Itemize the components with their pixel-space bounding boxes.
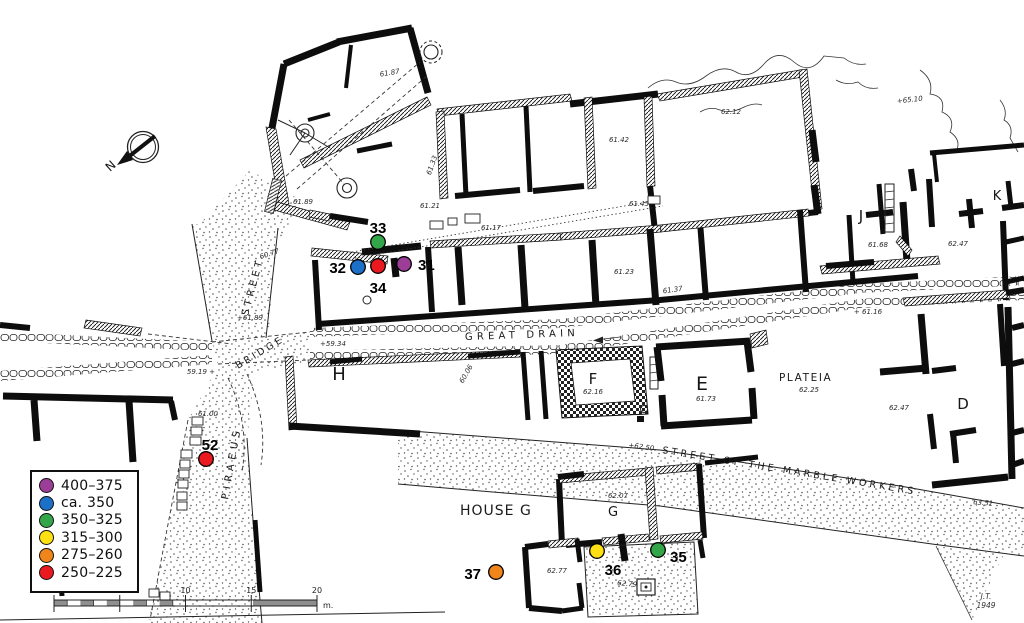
find-spot-label-31: 31 bbox=[418, 257, 435, 274]
building-letter-f: F bbox=[589, 370, 598, 388]
legend-item: 400–375 bbox=[39, 477, 137, 494]
signature-year: 1949 bbox=[976, 601, 995, 610]
elevation-label: 61.73 bbox=[696, 395, 716, 403]
elevation-label: +59.34 bbox=[320, 340, 346, 348]
well-feature bbox=[424, 45, 438, 59]
elevation-label: 61.37 bbox=[662, 285, 683, 296]
building-letter-d: D bbox=[957, 395, 969, 413]
find-spot-label-52: 52 bbox=[202, 437, 219, 454]
compass-needle bbox=[127, 136, 155, 158]
legend-label: 315–300 bbox=[61, 530, 123, 546]
scale-tick-label: 20 bbox=[312, 586, 322, 595]
building-letter-k: K bbox=[993, 189, 1002, 204]
legend-swatch bbox=[39, 565, 54, 580]
legend-item: 275–260 bbox=[39, 547, 137, 564]
elevation-label: 62.77 bbox=[547, 567, 568, 575]
elevation-label: 62.47 bbox=[948, 240, 969, 248]
find-spot-34 bbox=[371, 259, 386, 274]
building-letter-j: J bbox=[858, 207, 863, 225]
elevation-label: 61.33 bbox=[425, 155, 439, 177]
find-spot-label-33: 33 bbox=[370, 220, 387, 237]
legend-label: ca. 350 bbox=[61, 495, 114, 511]
building-letter-h: H bbox=[332, 364, 346, 385]
compass-n-label: N bbox=[103, 158, 119, 174]
find-spot-35 bbox=[651, 543, 666, 558]
legend-swatch bbox=[39, 478, 54, 493]
find-spot-37 bbox=[489, 565, 504, 580]
find-spot-32 bbox=[351, 260, 366, 275]
compass-rose: N bbox=[103, 132, 159, 175]
elevation-label: 61.21 bbox=[420, 202, 440, 210]
legend-item: 250–225 bbox=[39, 564, 137, 581]
scale-unit-label: m. bbox=[323, 601, 333, 610]
building-letter-e: E bbox=[696, 373, 708, 395]
legend-label: 250–225 bbox=[61, 565, 123, 581]
signature-initials: J.T. bbox=[979, 592, 992, 601]
legend-swatch bbox=[39, 496, 54, 511]
house-g-label: HOUSE G bbox=[460, 503, 532, 519]
legend-item: 350–325 bbox=[39, 512, 137, 529]
legend-swatch bbox=[39, 548, 54, 563]
elevation-label: 61.87 bbox=[379, 67, 401, 78]
find-spot-label-37: 37 bbox=[464, 566, 481, 583]
elevation-label: 61.68 bbox=[868, 241, 889, 249]
elevation-label: 61.42 bbox=[609, 136, 630, 144]
find-spot-label-35: 35 bbox=[670, 549, 687, 566]
legend-item: 315–300 bbox=[39, 529, 137, 546]
find-spot-label-36: 36 bbox=[605, 562, 622, 579]
elevation-label: 61.45 bbox=[629, 200, 650, 208]
elevation-label: 61.17 bbox=[481, 224, 502, 232]
legend-swatch bbox=[39, 513, 54, 528]
elevation-label: + 61.16 bbox=[854, 308, 883, 316]
find-spot-label-34: 34 bbox=[370, 280, 387, 297]
building-j-k bbox=[820, 145, 1024, 300]
legend-label: 275–260 bbox=[61, 547, 123, 563]
elevation-label: 62.25 bbox=[799, 386, 820, 394]
legend-item: ca. 350 bbox=[39, 494, 137, 511]
elevation-label: 59.19 + bbox=[187, 368, 215, 376]
elevation-label: +65.10 bbox=[896, 95, 923, 106]
elevation-label: 61.00 bbox=[198, 410, 219, 418]
scale-tick-label: 15 bbox=[246, 586, 256, 595]
legend-label: 350–325 bbox=[61, 512, 123, 528]
elevation-label: 61.23 bbox=[614, 268, 634, 276]
elevation-label: +61.89 bbox=[237, 314, 263, 322]
building-letter-g: G bbox=[608, 505, 618, 520]
elevation-label: 62.16 bbox=[583, 388, 604, 396]
great-drain bbox=[0, 276, 1024, 381]
elevation-label: 62.07 bbox=[608, 492, 629, 500]
scale-tick-label: 10 bbox=[180, 586, 190, 595]
terrain-contours bbox=[648, 55, 1018, 152]
elevation-label: 61.89 bbox=[293, 198, 314, 206]
plan-canvas: GREAT DRAIN STREET OF THE MARBLE WORKERS… bbox=[0, 0, 1024, 623]
elevation-label: 60.06 bbox=[458, 363, 475, 385]
legend-swatch bbox=[39, 530, 54, 545]
find-spot-label-32: 32 bbox=[329, 260, 346, 277]
plateia-label: PLATEIA bbox=[779, 372, 832, 384]
site-plan-map: GREAT DRAIN STREET OF THE MARBLE WORKERS… bbox=[0, 0, 1024, 623]
building-d bbox=[880, 290, 1024, 485]
legend-label: 400–375 bbox=[61, 478, 123, 494]
find-spot-31 bbox=[397, 257, 412, 272]
elevation-label: 62.12 bbox=[721, 108, 742, 116]
elevation-label: 62.47 bbox=[889, 404, 910, 412]
date-legend: 400–375ca. 350350–325315–300275–260250–2… bbox=[30, 470, 139, 593]
find-spot-36 bbox=[590, 544, 605, 559]
